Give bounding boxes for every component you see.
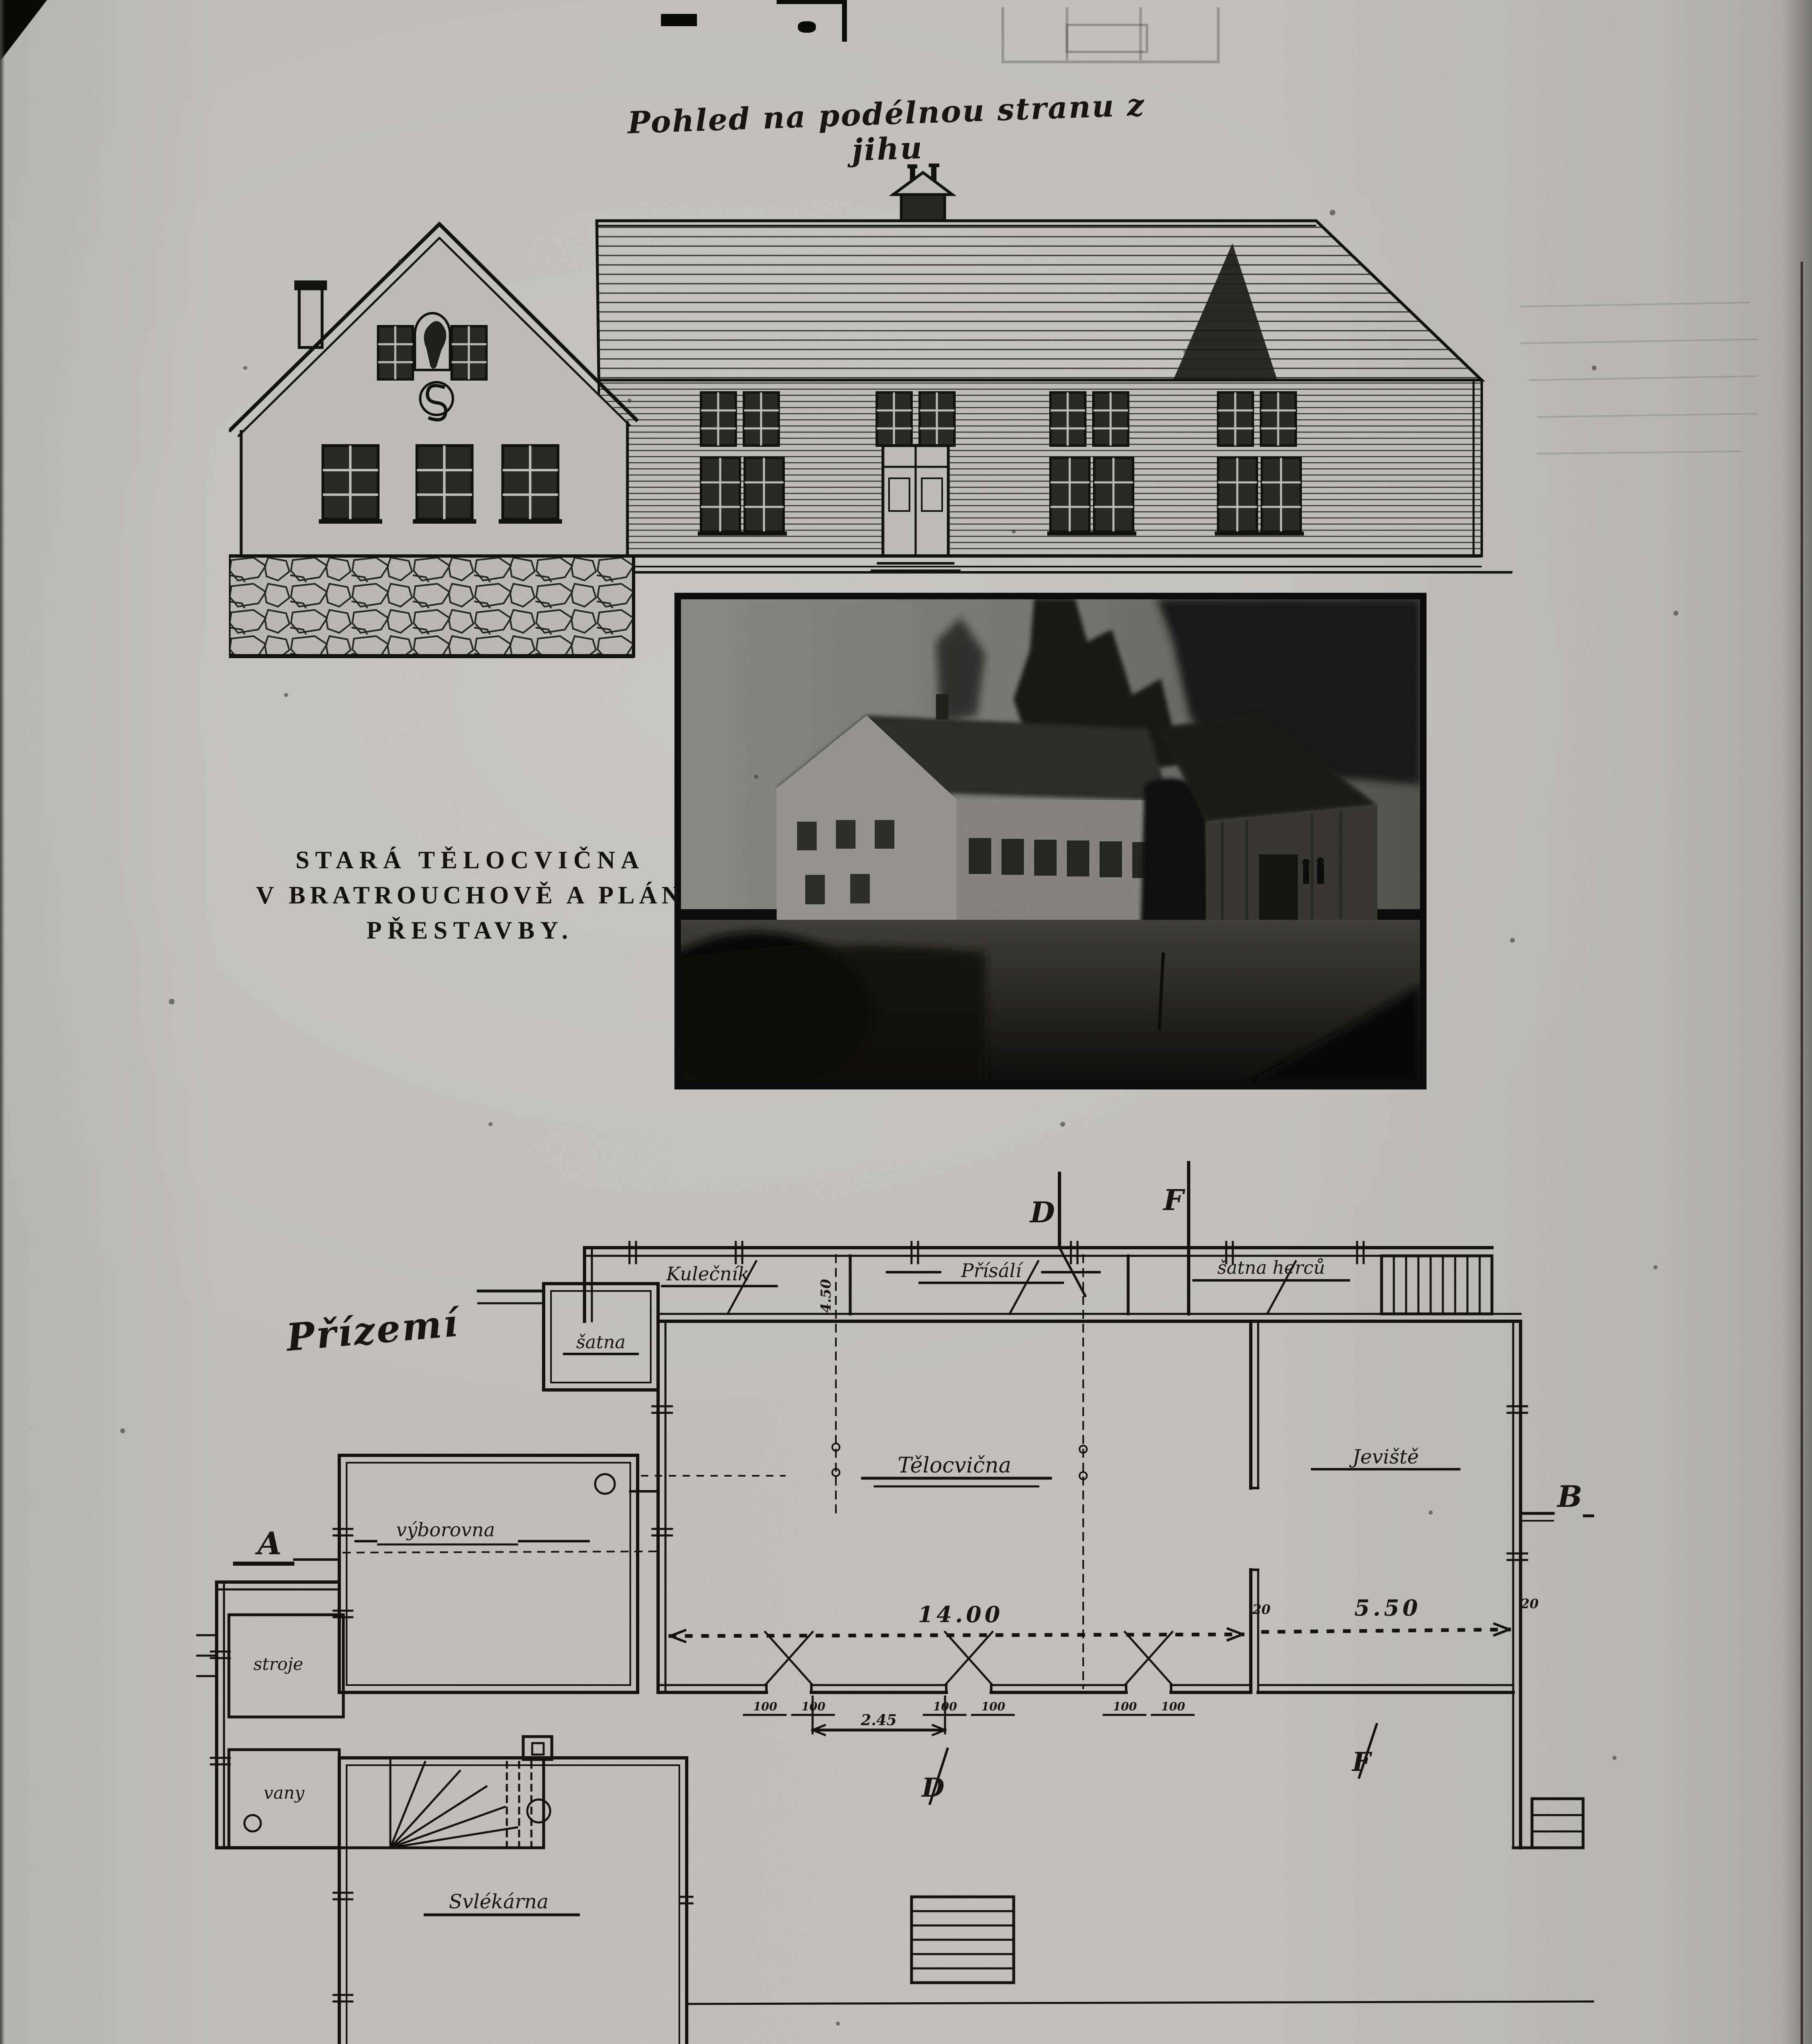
dim-door-leaf-3a: 100	[1113, 1700, 1137, 1713]
dim-hall-length: 14.00	[918, 1601, 1003, 1627]
room-vyborovna-walls	[334, 1455, 785, 1692]
elevation-drawing	[229, 164, 1782, 662]
long-building-roof	[597, 221, 1482, 380]
room-label-vany: vany	[264, 1783, 305, 1803]
dim-wall-gap-2: 20	[1520, 1596, 1539, 1611]
room-label-kulecnik: Kulečník	[666, 1263, 749, 1285]
dim-wall-gap-1: 20	[1252, 1602, 1271, 1617]
dim-door-leaf-1b: 100	[802, 1700, 826, 1713]
gable-emblem	[415, 313, 450, 370]
room-label-telocvicna: Tělocvična	[898, 1453, 1011, 1478]
left-annex-walls	[196, 1582, 343, 1848]
long-building-wall	[599, 380, 1512, 572]
section-marker-f1: F	[1162, 1183, 1185, 1217]
dim-door-leaf-2b: 100	[981, 1700, 1006, 1713]
dim-corridor-depth: 4.50	[818, 1279, 834, 1313]
scan-artifact-top-mark	[777, 0, 847, 42]
dim-stage-depth: 5.50	[1354, 1595, 1421, 1621]
room-jeviste-walls	[1258, 1321, 1583, 1848]
room-label-satna: šatna	[576, 1332, 625, 1353]
section-marker-b: B	[1557, 1479, 1582, 1514]
room-label-prisali: Přísálí	[961, 1260, 1024, 1282]
winding-stair	[339, 1758, 544, 1848]
scan-artifact-top-left-corner	[0, 0, 47, 61]
room-label-vyborovna: výborovna	[396, 1519, 495, 1541]
dim-door-leaf-3b: 100	[1161, 1700, 1185, 1713]
terrain-line	[687, 2001, 1594, 2004]
dim-door-leaf-2a: 100	[933, 1700, 957, 1713]
dim-door-leaf-1a: 100	[753, 1700, 777, 1713]
photo-caption: STARÁ TĚLOCVIČNA V BRATROUCHOVĚ A PLÁN P…	[253, 843, 687, 948]
photograph	[674, 593, 1427, 1089]
section-marker-d1: D	[1029, 1195, 1055, 1229]
scan-artifact-top-bar	[661, 14, 697, 26]
room-satna-walls	[478, 1284, 658, 1390]
room-label-svlekarna: Svlékárna	[449, 1890, 549, 1913]
gabled-house	[229, 224, 638, 656]
external-stair	[912, 1897, 1014, 1983]
section-marker-f2: F	[1351, 1747, 1373, 1777]
scan-artifact-left-edge	[0, 0, 5, 2044]
section-marker-d-top	[1059, 1173, 1085, 1296]
section-marker-a-leader	[235, 1551, 658, 1564]
section-marker-d2: D	[921, 1773, 945, 1803]
dim-door-span: 2.45	[860, 1712, 897, 1729]
room-label-jeviste: Jeviště	[1349, 1446, 1419, 1468]
stage-stairs	[1382, 1256, 1492, 1314]
section-marker-a: A	[255, 1525, 282, 1562]
section-marker-b-leader	[1521, 1513, 1594, 1521]
caption-line-1: STARÁ TĚLOCVIČNA	[253, 843, 687, 878]
room-label-stroje: stroje	[253, 1654, 303, 1674]
scan-artifact-top-blob	[798, 21, 816, 33]
scan-artifact-right-shade	[1782, 0, 1812, 2044]
dimension-hall-length	[670, 1624, 1509, 1642]
entrance-door	[871, 446, 961, 571]
scan-artifact-ghost-lines	[1521, 303, 1758, 454]
caption-line-2: V BRATROUCHOVĚ A PLÁN	[253, 878, 687, 913]
caption-line-3: PŘESTAVBY.	[253, 913, 687, 948]
room-label-satna-hercu: šatna herců	[1217, 1257, 1325, 1278]
roof-ventilator	[893, 164, 952, 221]
scanned-page: Pohled na podélnou stranu z jihu	[0, 0, 1812, 2044]
scan-artifact-ghost-figure	[1001, 7, 1220, 63]
floor-plan-drawing: Kulečník Přísálí šatna herců šatna Těloc…	[196, 1161, 1594, 2044]
